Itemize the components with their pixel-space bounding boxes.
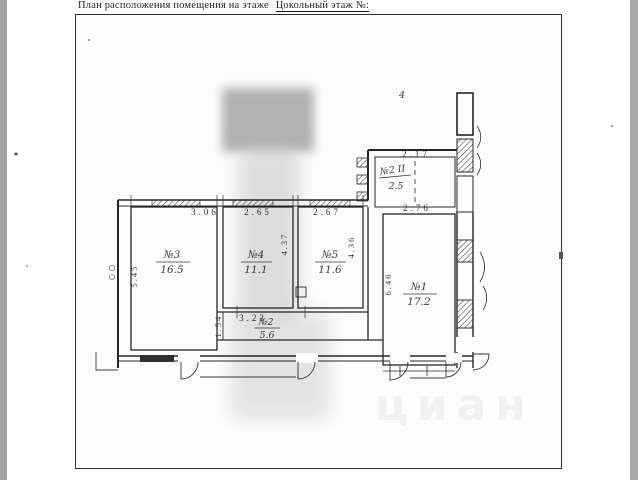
room5-number: №5 <box>321 249 339 261</box>
dim-room1-depth: 6.46 <box>383 273 393 296</box>
dim-room4-width: 2.65 <box>244 207 272 217</box>
dim-room1-width: 2.76 <box>403 203 431 213</box>
room3-area: 16.5 <box>160 264 184 276</box>
dim-corridor-depth: 1.54 <box>213 315 223 338</box>
dim-room3-width: 3.06 <box>191 207 219 217</box>
corridor2-area: 5.6 <box>259 330 274 341</box>
floor-plan-drawing: 3.06 2.65 2.67 2.76 2.17 3.23 5.45 4.37 … <box>0 0 638 480</box>
corridor2-number: №2 <box>257 317 273 328</box>
dim-upper2-width: 2.17 <box>402 149 430 159</box>
handwritten-mark: 4 <box>398 90 405 101</box>
dim-room5-depth: 4.36 <box>346 236 356 259</box>
room4-number: №4 <box>247 249 265 261</box>
dim-room5-width: 2.67 <box>313 207 341 217</box>
upper2-area: 2.5 <box>387 181 403 192</box>
room4-area: 11.1 <box>244 264 267 276</box>
dim-room3-depth: 5.45 <box>129 265 139 288</box>
room1-number: №1 <box>410 281 428 293</box>
cian-watermark: циан <box>375 380 535 431</box>
room3-number: №3 <box>163 249 181 261</box>
scanned-floor-plan-page: План расположения помещения на этаже Цок… <box>0 0 638 480</box>
dim-room4-depth: 4.37 <box>279 233 289 256</box>
room5-area: 11.6 <box>318 264 342 276</box>
room1-area: 17.2 <box>407 296 431 308</box>
